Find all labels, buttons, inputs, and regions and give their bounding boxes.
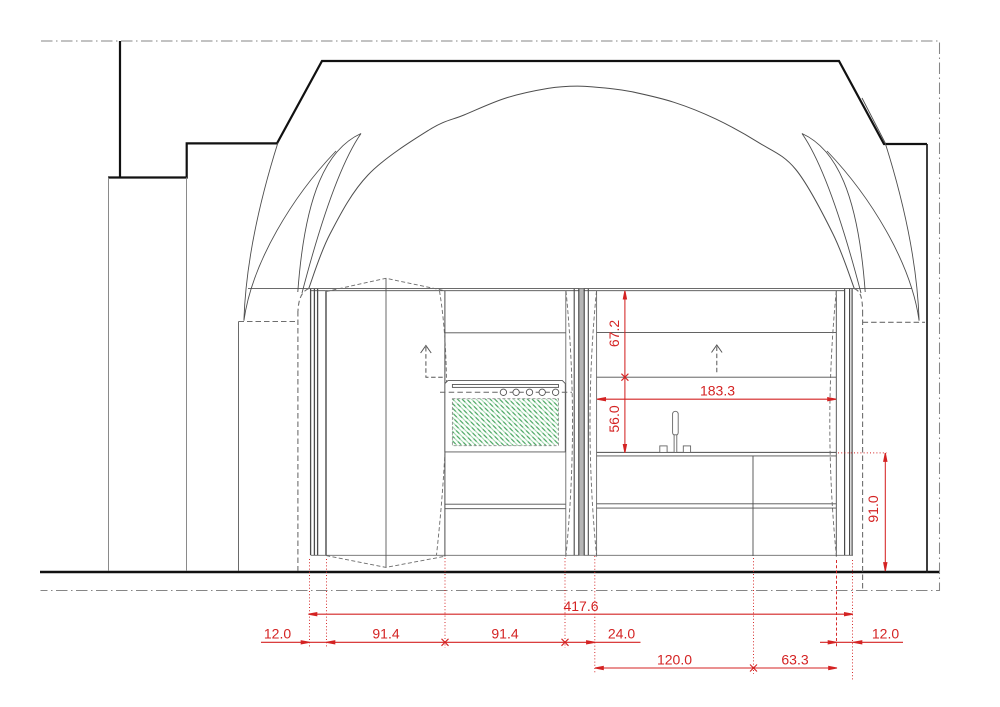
svg-text:91.4: 91.4 — [491, 626, 518, 642]
svg-text:12.0: 12.0 — [264, 626, 291, 642]
svg-text:63.3: 63.3 — [781, 651, 808, 667]
svg-text:67.2: 67.2 — [606, 320, 622, 347]
svg-text:24.0: 24.0 — [608, 626, 635, 642]
svg-text:56.0: 56.0 — [606, 405, 622, 432]
svg-text:12.0: 12.0 — [872, 626, 899, 642]
svg-text:91.4: 91.4 — [372, 626, 399, 642]
svg-text:120.0: 120.0 — [657, 651, 692, 667]
svg-text:91.0: 91.0 — [865, 495, 881, 522]
svg-text:183.3: 183.3 — [700, 382, 735, 398]
svg-text:417.6: 417.6 — [563, 598, 598, 614]
